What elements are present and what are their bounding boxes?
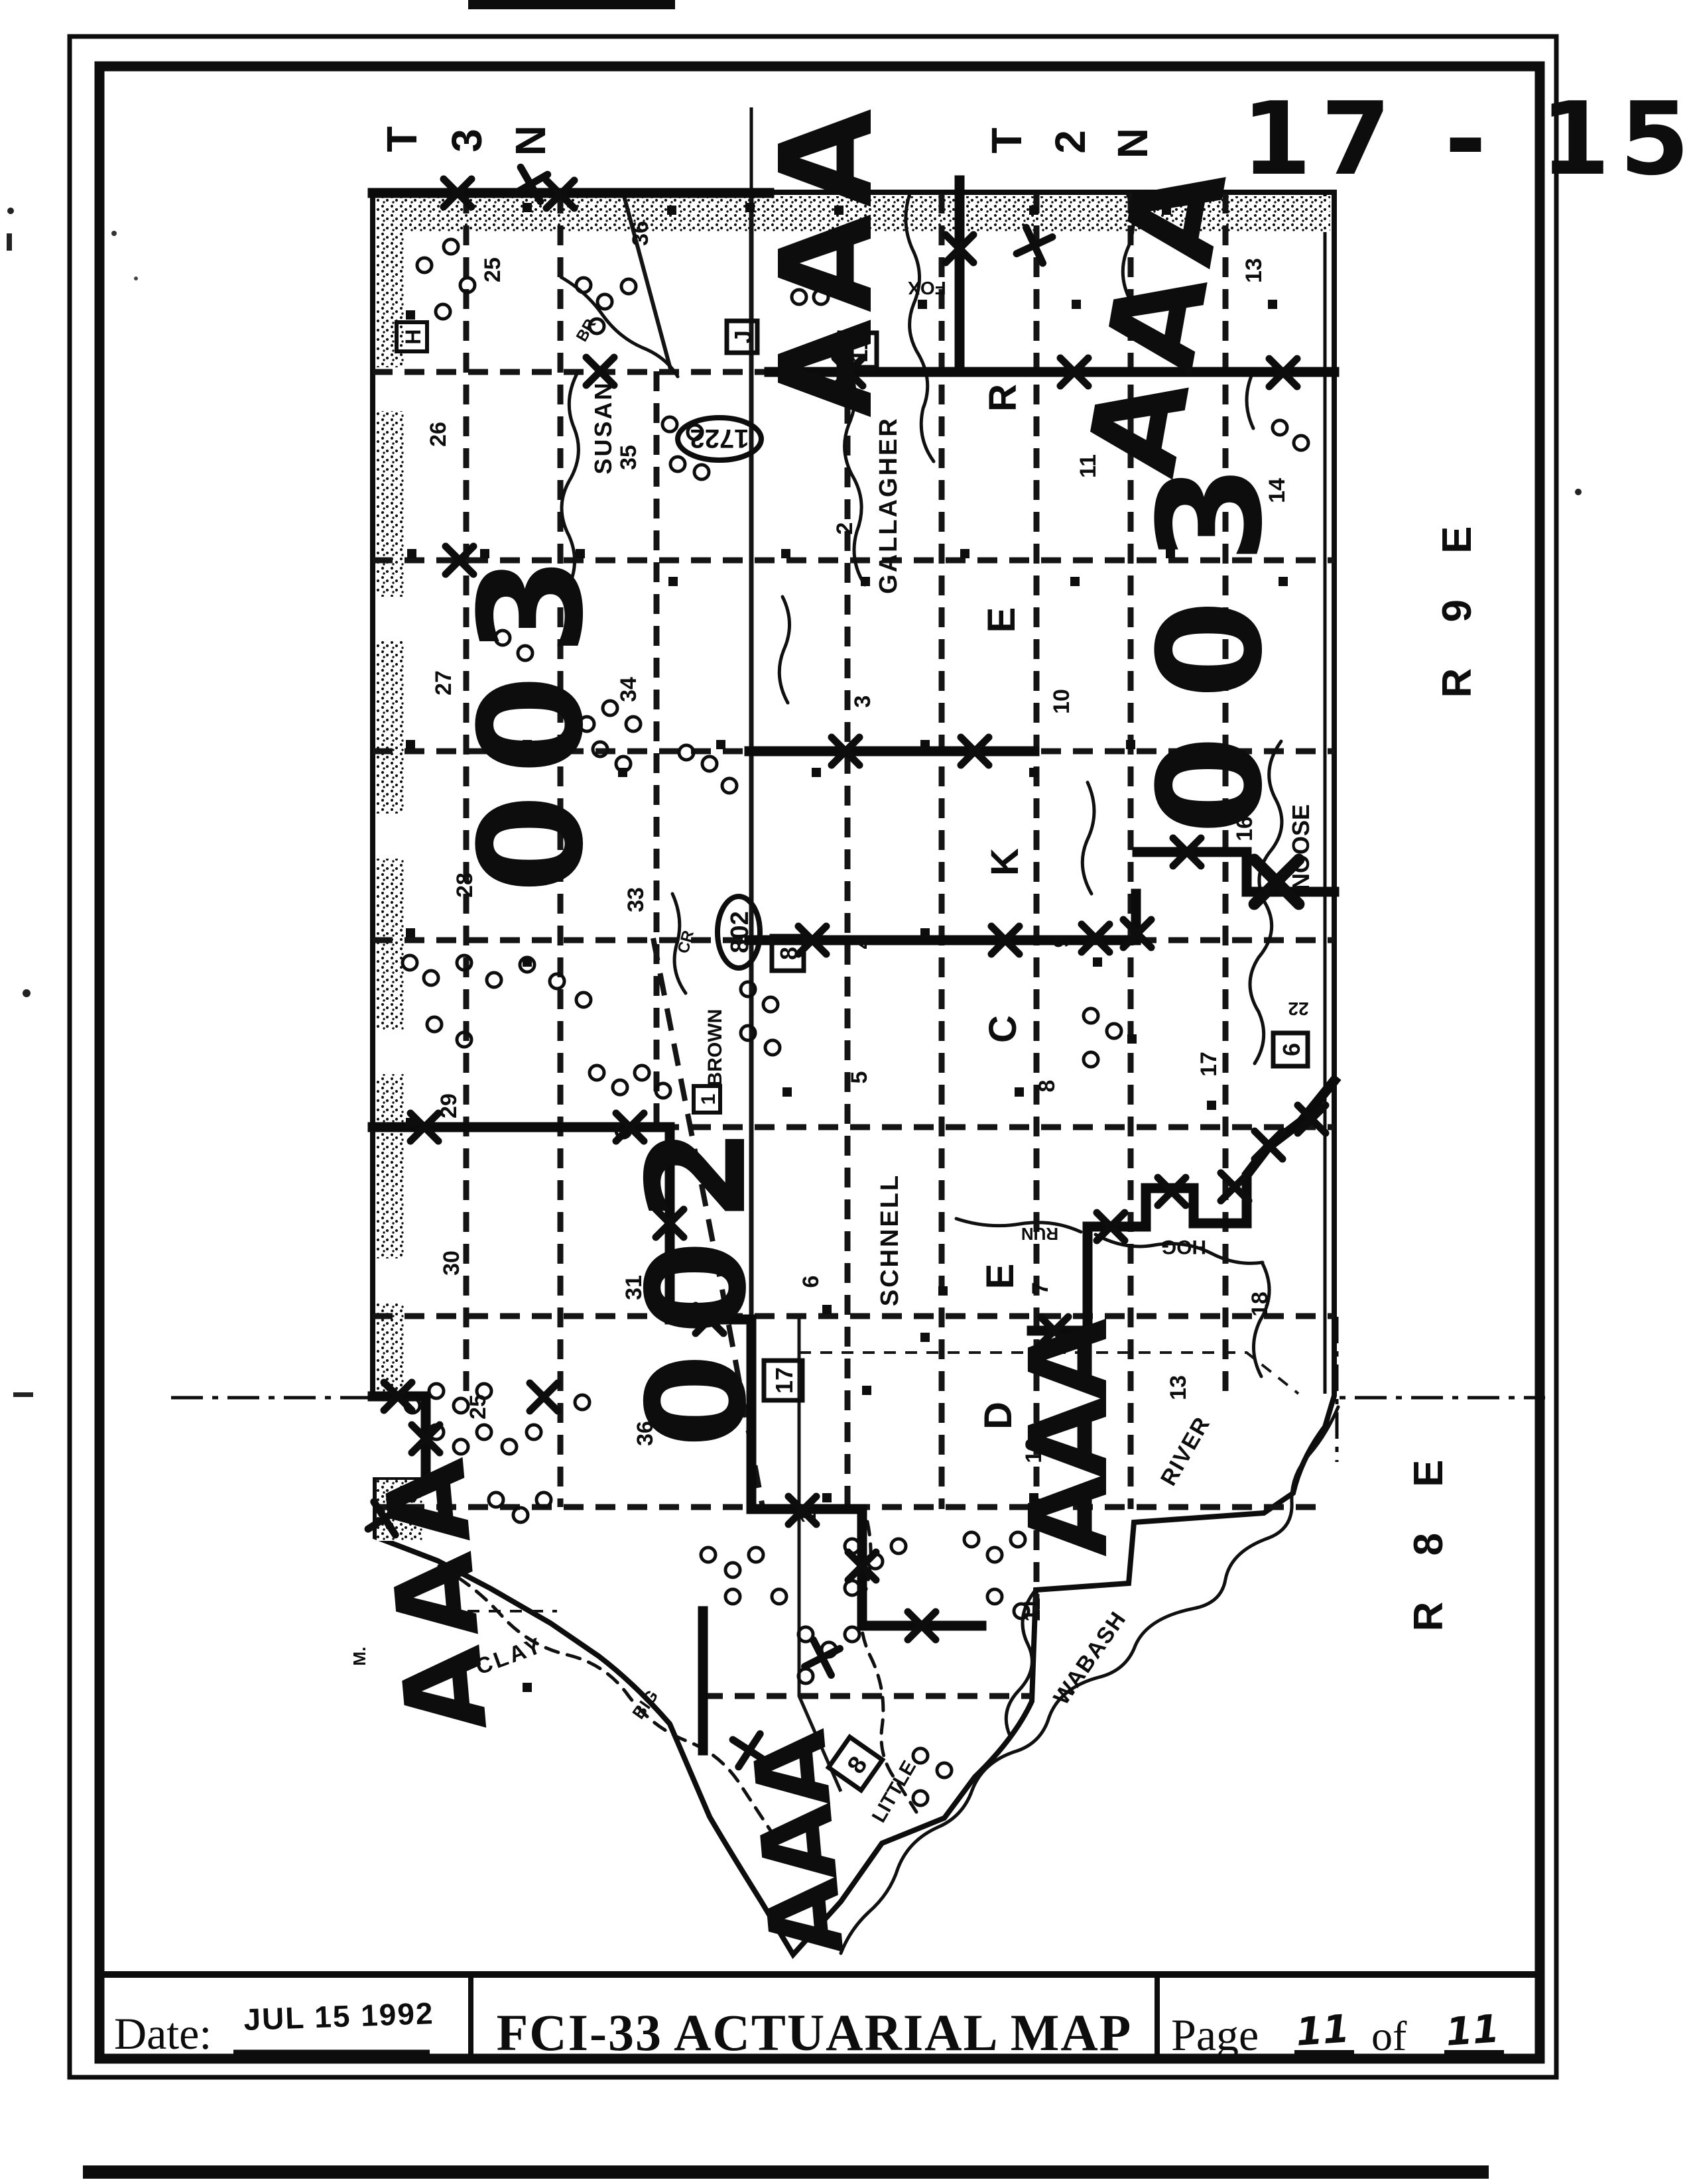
section-number: 1 — [796, 1511, 821, 1524]
page-label: Page — [1171, 2010, 1259, 2060]
zone-letter-c: C — [981, 1015, 1025, 1043]
date-stamp: JUL 15 1992 — [243, 1996, 435, 2037]
aaa-bottom-left: AAA — [361, 1445, 512, 1737]
scanned-actuarial-map-page: 17 - 159 T 3 N T 2 N R 9 E R 8 E — [0, 0, 1687, 2184]
map-sheet: 17 - 159 T 3 N T 2 N R 9 E R 8 E — [0, 0, 1687, 2184]
section-number: 26 — [426, 422, 451, 447]
section-number: 13 — [1166, 1375, 1191, 1400]
t3n-3: 3 — [443, 129, 491, 152]
section-number: 17 — [1196, 1052, 1221, 1077]
aaa-top-center: AAA — [753, 102, 901, 418]
gallagher-label: GALLAGHER — [875, 416, 903, 594]
zone-letter-r: R — [981, 384, 1025, 412]
of-label: of — [1371, 2012, 1407, 2059]
brown-label: BROWN — [704, 1009, 726, 1087]
page-current: 11 — [1294, 2006, 1351, 2054]
range-9e-label: R 9 E — [1434, 509, 1480, 698]
section-number: 5 — [847, 1071, 872, 1084]
section-number: 29 — [436, 1093, 462, 1119]
section-number: 4 — [850, 936, 875, 949]
page-total: 11 — [1444, 2006, 1501, 2054]
section-number: 7 — [1028, 1282, 1053, 1295]
aaa-bottom-tail: AAA — [732, 1726, 867, 1961]
sheet-title: FCI-33 ACTUARIAL MAP — [497, 2004, 1133, 2061]
section-number: 8 — [1034, 1080, 1060, 1093]
zone-002: 002 — [619, 1109, 777, 1448]
section-number: 2 — [832, 522, 857, 535]
section-number: 25 — [480, 257, 505, 282]
zone-003-left: 003 — [448, 536, 615, 894]
aaa-right-middle: AAA — [1007, 1318, 1132, 1557]
section-number: 10 — [1049, 689, 1074, 714]
route-1722-label: 1722 — [690, 424, 749, 453]
section-number: 3 — [850, 696, 875, 708]
date-label: Date: — [114, 2008, 212, 2059]
t3n-t: T — [378, 126, 426, 152]
wabash-label: WABASH — [1048, 1607, 1131, 1709]
t2n-t: T — [983, 127, 1031, 153]
section-number: 18 — [1247, 1292, 1273, 1317]
hog-label: HOG — [1161, 1236, 1206, 1258]
fox-label: FOX — [908, 278, 946, 298]
title-bar: Date: JUL 15 1992 FCI-33 ACTUARIAL MAP P… — [99, 1974, 1540, 2061]
section-number: 25 — [466, 1394, 491, 1420]
route-802-label: 802 — [726, 911, 754, 953]
section-number: 6 — [798, 1276, 824, 1288]
section-number: 13 — [1241, 258, 1267, 283]
section-number: 34 — [616, 677, 641, 702]
route-h-label: H — [401, 329, 425, 344]
t3n-n: N — [507, 125, 554, 156]
route-j-label: J — [729, 330, 757, 343]
zone-letter-e: E — [980, 607, 1023, 633]
susan-label: SUSAN — [590, 381, 617, 474]
section-number: 35 — [616, 445, 641, 470]
section-number: 9 — [1049, 936, 1074, 948]
schnell-label: SCHNELL — [876, 1174, 904, 1306]
route-8-label: 8 — [775, 947, 802, 960]
route-22-label: 22 — [1288, 999, 1308, 1019]
run-label: RUN — [1021, 1224, 1058, 1244]
section-number: 33 — [623, 887, 649, 912]
zone-letter-k: K — [983, 848, 1027, 876]
section-number: 30 — [439, 1250, 464, 1276]
range-8e-label: R 8 E — [1406, 1442, 1452, 1631]
t2n-2: 2 — [1046, 130, 1094, 154]
sheet-number: 17 - 159 — [1241, 80, 1687, 198]
m-label: M. — [349, 1647, 369, 1666]
zone-003-right: 003 — [1127, 428, 1294, 835]
zone-letter-e2: E — [979, 1264, 1022, 1290]
section-number: 36 — [628, 221, 653, 246]
route-6-label: 6 — [1278, 1043, 1305, 1056]
section-number: 11 — [1020, 1598, 1045, 1622]
route-1-label: 1 — [698, 1094, 719, 1105]
